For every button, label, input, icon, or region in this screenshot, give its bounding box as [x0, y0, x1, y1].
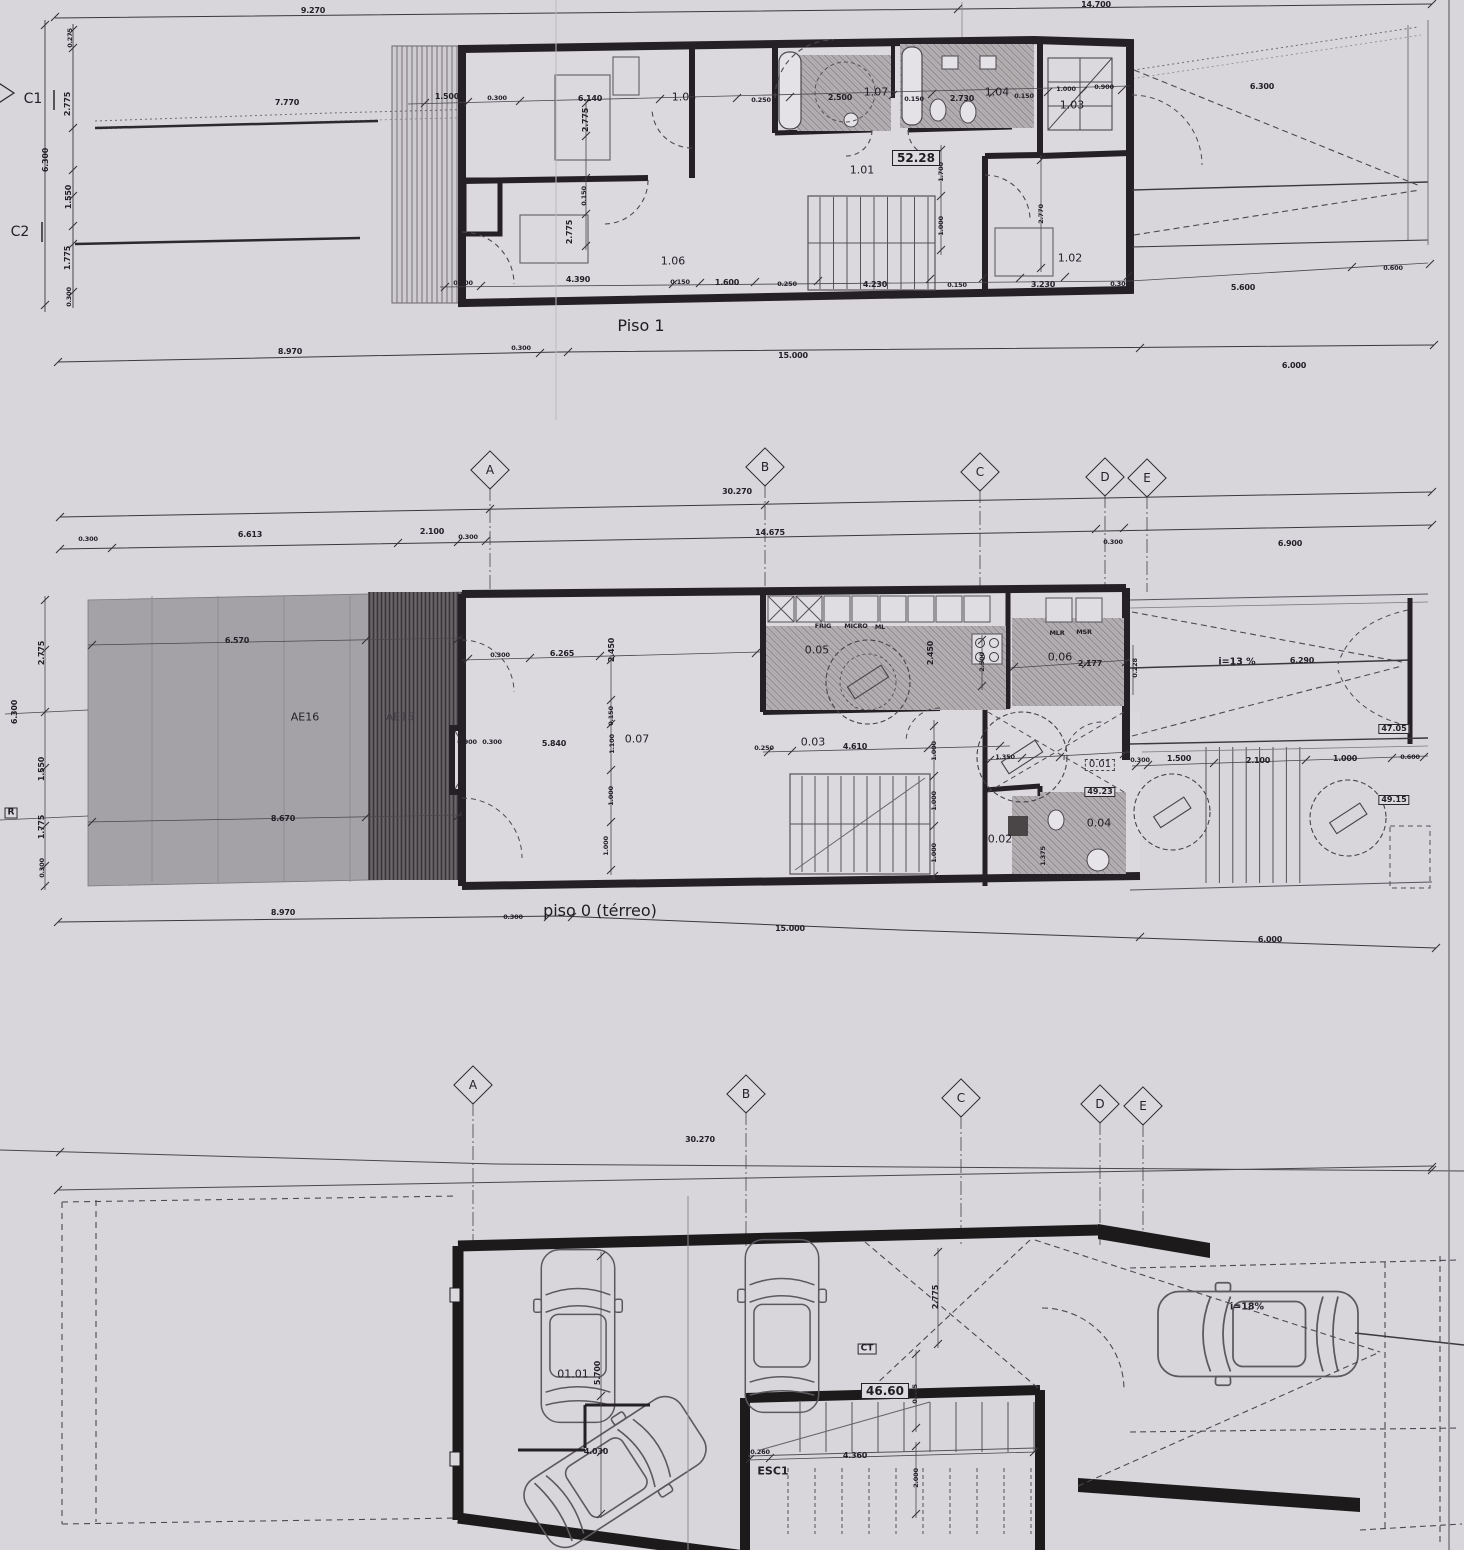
area-box: 49.23 — [1084, 787, 1115, 797]
ct-box: CT — [858, 1344, 877, 1355]
area-box-piso1: 52.28 — [892, 150, 940, 166]
dimension-label: MICRO — [844, 623, 867, 630]
dimension-label: 0.300 — [453, 280, 473, 287]
room-label: 1.01 — [850, 165, 875, 176]
dimension-label: 1.775 — [38, 815, 46, 839]
dimension-label: 0.900 — [457, 739, 477, 746]
dimension-label: 1.000 — [938, 216, 945, 236]
room-label: 1.06 — [661, 256, 686, 267]
dimension-label: 0.250 — [751, 97, 771, 104]
dimension-label: 6.613 — [238, 531, 262, 539]
dimension-label: 0.250 — [754, 745, 774, 752]
room-label: 0.06 — [1048, 652, 1073, 663]
dimension-label: 2.770 — [1038, 204, 1045, 224]
dimension-label: 2.177 — [1078, 660, 1102, 668]
dimension-label: 0.900 — [1094, 84, 1114, 91]
dimension-label: 1.100 — [609, 734, 616, 754]
dimension-label: 0.275 — [67, 28, 74, 48]
piso1-plan — [0, 2, 1434, 362]
dimension-label: MSR — [1076, 629, 1092, 636]
room-label: i=13 % — [1218, 657, 1255, 667]
dimension-label: 6.000 — [1282, 362, 1306, 370]
dimension-label: 0.150 — [581, 186, 588, 206]
dimension-label: 0.300 — [490, 652, 510, 659]
dimension-label: 2.500 — [979, 652, 986, 672]
room-label: 0.03 — [801, 737, 826, 748]
dimension-label: 6.900 — [1278, 540, 1302, 548]
dimension-label: 15.000 — [775, 925, 805, 933]
dimension-label: 30.270 — [685, 1136, 715, 1144]
grid-band2-stems — [473, 1102, 1143, 1246]
dimension-label: 2.100 — [420, 528, 444, 536]
dimension-label: 1.000 — [931, 741, 938, 761]
room-label: 1.07 — [864, 87, 889, 98]
dimension-label: 1.500 — [1167, 755, 1191, 763]
dimension-label: 1.000 — [603, 836, 610, 856]
dimension-label: 30.270 — [722, 488, 752, 496]
dimension-label: 8.970 — [271, 909, 295, 917]
dimension-label: 2.775 — [38, 641, 46, 665]
grid-marker-c1: C1 — [24, 92, 43, 106]
dimension-label: 1.500 — [435, 93, 459, 101]
dimension-label: 8.670 — [271, 815, 295, 823]
dimension-label: 0.150 — [608, 706, 615, 726]
dimension-label: 0.300 — [1130, 757, 1150, 764]
room-label: AE15 — [386, 712, 414, 723]
room-label: 1.03 — [1060, 100, 1085, 111]
dimension-label: 6.290 — [1290, 657, 1314, 665]
dimension-label: 14.700 — [1081, 1, 1111, 9]
dimension-label: 0.260 — [750, 1449, 770, 1456]
dimension-label: 2.450 — [608, 638, 616, 662]
dimension-label: 0.300 — [39, 858, 46, 878]
dimension-label: 2.000 — [913, 1468, 920, 1488]
dimension-label: 14.675 — [755, 529, 785, 537]
marker-r: R — [5, 808, 18, 819]
dimension-label: 1.000 — [931, 843, 938, 863]
dimension-label: 1.000 — [931, 791, 938, 811]
dimension-label: 0.150 — [904, 96, 924, 103]
plan-title-piso1: Piso 1 — [617, 318, 664, 334]
dimension-label: 5.700 — [594, 1361, 602, 1385]
dimension-label: 2.500 — [828, 94, 852, 102]
dimension-label: 15.000 — [778, 352, 808, 360]
room-label: 0.04 — [1087, 818, 1112, 829]
dimension-label: 6.300 — [42, 148, 50, 172]
dimension-label: 2.775 — [932, 1285, 940, 1309]
dimension-label: 0.228 — [1132, 658, 1139, 678]
dimension-label: 6.570 — [225, 637, 249, 645]
grid-band1-stems — [490, 484, 1147, 592]
piso0-plan — [0, 588, 1436, 948]
dimension-label: 6.300 — [11, 700, 19, 724]
garage-plan — [62, 1196, 1464, 1550]
dimension-label: 0.300 — [1110, 281, 1130, 288]
dimension-label: 8.970 — [278, 348, 302, 356]
dimension-label: 0.300 — [78, 536, 98, 543]
dimension-label: 1.000 — [608, 786, 615, 806]
dimension-label: 0.775 — [912, 1384, 919, 1404]
room-label: 1.02 — [1058, 253, 1083, 264]
dimension-label: 0.300 — [487, 95, 507, 102]
dimension-label: 0.300 — [458, 534, 478, 541]
dimension-label: 4.390 — [566, 276, 590, 284]
dimension-label: 1.550 — [65, 185, 73, 209]
dimension-label: 4.360 — [843, 1452, 867, 1460]
dimension-label: 2.775 — [64, 92, 72, 116]
dimension-label: 1.350 — [995, 754, 1015, 761]
room-label: 0.05 — [805, 645, 830, 656]
area-box: 47.05 — [1378, 724, 1409, 734]
dimension-label: 1.550 — [38, 757, 46, 781]
dimension-label: 1.000 — [1333, 755, 1357, 763]
room-label: 0.02 — [988, 834, 1013, 845]
dimension-label: ML — [875, 624, 885, 631]
grid-marker-c2: C2 — [11, 225, 30, 239]
room-label: AE16 — [291, 712, 319, 723]
dimension-label: 2.450 — [927, 641, 935, 665]
dimension-label: 6.140 — [578, 95, 602, 103]
dimension-label: 1.775 — [64, 246, 72, 270]
dimension-label: 1.375 — [1040, 846, 1047, 866]
dimension-label: 2.730 — [950, 95, 974, 103]
room-label: 01.01 — [557, 1369, 589, 1380]
dimension-label: 4.230 — [863, 281, 887, 289]
dimension-label: 2.775 — [582, 108, 590, 132]
dimension-label: 5.600 — [1231, 284, 1255, 292]
dimension-label: FRIG — [815, 623, 831, 630]
plan-title-piso0: piso 0 (térreo) — [543, 903, 657, 919]
dimension-label: 0.600 — [1383, 265, 1403, 272]
dimension-label: 9.270 — [301, 7, 325, 15]
dimension-label: 5.840 — [542, 740, 566, 748]
room-label: i=18% — [1230, 1302, 1264, 1312]
dimension-label: 0.150 — [1014, 93, 1034, 100]
scanned-floor-plan-sheet: 9.27014.7007.7701.5000.3006.1401.050.250… — [0, 0, 1464, 1550]
dimension-label: 0.300 — [66, 287, 73, 307]
dimension-label: 0.300 — [1103, 539, 1123, 546]
dimension-label: 1.600 — [715, 279, 739, 287]
dimension-label: 2.775 — [566, 220, 574, 244]
dimension-label: 0.300 — [482, 739, 502, 746]
area-box: 49.15 — [1378, 795, 1409, 805]
plan-drawing — [0, 0, 1464, 1550]
dimension-label: 0.150 — [670, 279, 690, 286]
dimension-label: 1.000 — [1056, 86, 1076, 93]
dimension-label: 2.100 — [1246, 757, 1270, 765]
room-label: 0.07 — [625, 734, 650, 745]
dimension-label: 0.250 — [777, 281, 797, 288]
room-label: 1.05 — [672, 92, 697, 103]
dimension-label: 6.265 — [550, 650, 574, 658]
dimension-label: 0.150 — [947, 282, 967, 289]
dimension-label: 0.600 — [1400, 754, 1420, 761]
dimension-label: 6.000 — [1258, 936, 1282, 944]
dimension-label: 3.230 — [1031, 281, 1055, 289]
dimension-label: MLR — [1049, 630, 1064, 637]
dimension-label: 0.300 — [511, 345, 531, 352]
room-label: 1.04 — [985, 87, 1010, 98]
area-box-garage: 46.60 — [861, 1383, 909, 1399]
dimension-label: 6.300 — [1250, 83, 1274, 91]
dimension-label: 7.770 — [275, 99, 299, 107]
dimension-label: 4.030 — [584, 1448, 608, 1456]
stair-label-esc1: ESC1 — [757, 1466, 788, 1477]
dimension-label: 0.300 — [503, 914, 523, 921]
room-label: 0.01 — [1085, 759, 1115, 771]
dimension-label: 4.610 — [843, 743, 867, 751]
